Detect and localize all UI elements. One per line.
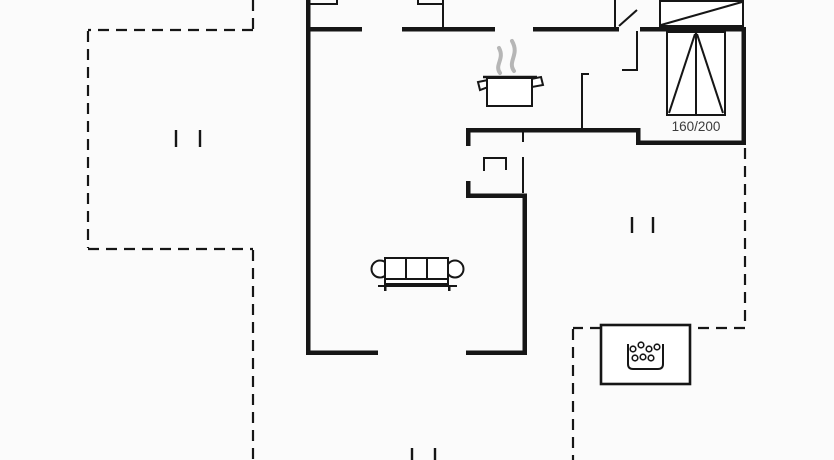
whirlpool-bubble [640, 354, 646, 360]
bedroom-door-swing [619, 10, 637, 26]
wall-top-segment-b [402, 27, 495, 32]
whirlpool-bubble [632, 355, 638, 361]
sofa-cushions [385, 258, 448, 279]
whirlpool-bubble [638, 342, 644, 348]
whirlpool-bubble [646, 346, 652, 352]
wall-bedroom-bottom [636, 141, 746, 146]
bed-size-label: 160/200 [672, 119, 721, 134]
wall-hall-lower [466, 194, 527, 199]
bedroom-niche-partition [622, 31, 637, 70]
wall-top-segment-a [306, 27, 362, 32]
sofa-icon [372, 258, 464, 291]
wall-left-exterior [306, 0, 311, 355]
wall-top-bedroom [640, 27, 746, 32]
sofa-foot-left [384, 285, 387, 291]
sofa-seat-front [385, 279, 448, 284]
sofa-armrest-right [447, 261, 464, 278]
terrace-outlines [88, 0, 745, 460]
floor-plan-drawing: 160/200 [0, 0, 834, 460]
side-table-outline [484, 158, 506, 171]
whirlpool-bubble [648, 355, 654, 361]
whirlpool-bubble [654, 344, 660, 350]
wall-living-right [523, 194, 528, 356]
sofa-foot-right [448, 285, 451, 291]
wall-bedroom-right [742, 27, 747, 145]
doorframe-top-middle [418, 0, 443, 4]
wall-bottom-left-segment [306, 351, 378, 356]
floor-plan: 160/200 [0, 0, 834, 460]
kitchen-partition [582, 74, 589, 128]
wall-bottom-right-segment [466, 351, 527, 356]
pot-body [487, 78, 532, 106]
cooking-pot-icon [478, 77, 543, 106]
steam-icon [498, 41, 515, 73]
wall-hall-upper [466, 128, 640, 133]
steam-wisp-right [512, 41, 515, 71]
whirlpool-tub-icon [601, 325, 690, 384]
wardrobe-icon [660, 1, 743, 26]
wall-top-segment-c [533, 27, 619, 32]
whirlpool-bubble [630, 346, 636, 352]
side-table-icon [484, 158, 506, 171]
doorframe-top-left [310, 0, 337, 4]
opening-marks [176, 130, 653, 460]
double-bed-icon [667, 32, 725, 115]
steam-wisp-left [498, 48, 501, 73]
wall-hall-upper-endcap [466, 128, 471, 146]
